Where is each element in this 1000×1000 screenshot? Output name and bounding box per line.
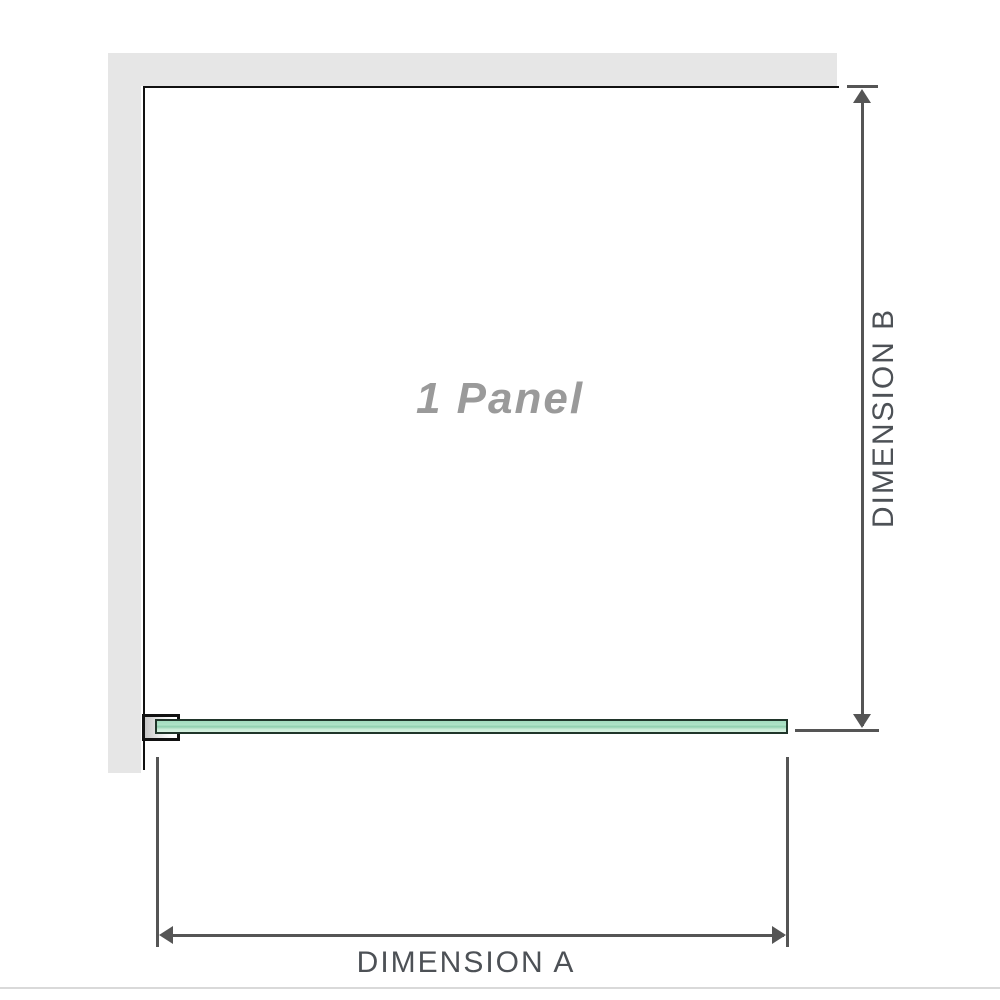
dimension-a-arrowhead-right (772, 926, 786, 944)
dimension-b-tick-top (847, 85, 878, 88)
dimension-a-arrow-line (162, 934, 784, 937)
wall-left-bar (108, 53, 141, 773)
dimension-a-arrowhead-left (159, 926, 173, 944)
panel-count-label: 1 Panel (416, 374, 584, 424)
panel-outline-left-edge (143, 86, 145, 770)
dimension-a-extension-left (156, 757, 159, 947)
wall-top-bar (108, 53, 837, 86)
image-bottom-border (0, 987, 1000, 989)
dimension-b-arrow-line (861, 92, 864, 726)
dimension-b-arrowhead-up (853, 89, 871, 103)
panel-outline-top-edge (143, 86, 839, 88)
glass-panel (155, 719, 788, 734)
dimension-a-label: DIMENSION A (357, 946, 576, 980)
dimension-b-arrowhead-down (853, 714, 871, 728)
panel-dimension-diagram: 1 Panel DIMENSION B DIMENSION A (0, 0, 1000, 1000)
dimension-a-extension-right (786, 757, 789, 947)
dimension-b-label: DIMENSION B (867, 308, 901, 528)
dimension-b-tick-bottom (795, 729, 879, 732)
